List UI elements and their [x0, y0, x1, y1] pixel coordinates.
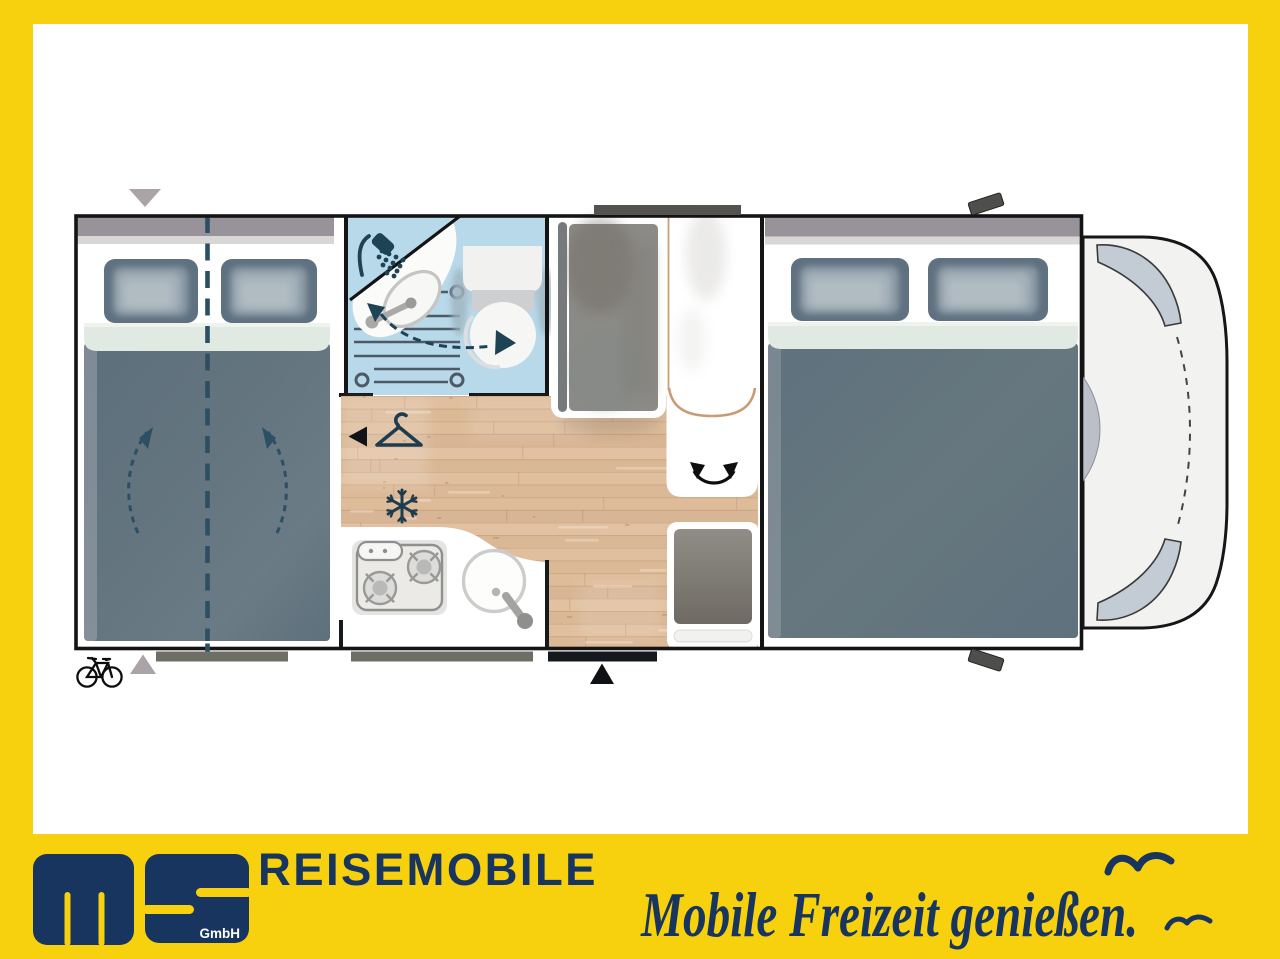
svg-text:GmbH: GmbH — [200, 926, 241, 941]
svg-text:Mobile Freizeit genießen.: Mobile Freizeit genießen. — [640, 879, 1138, 950]
svg-text:REISEMOBILE: REISEMOBILE — [258, 844, 598, 895]
